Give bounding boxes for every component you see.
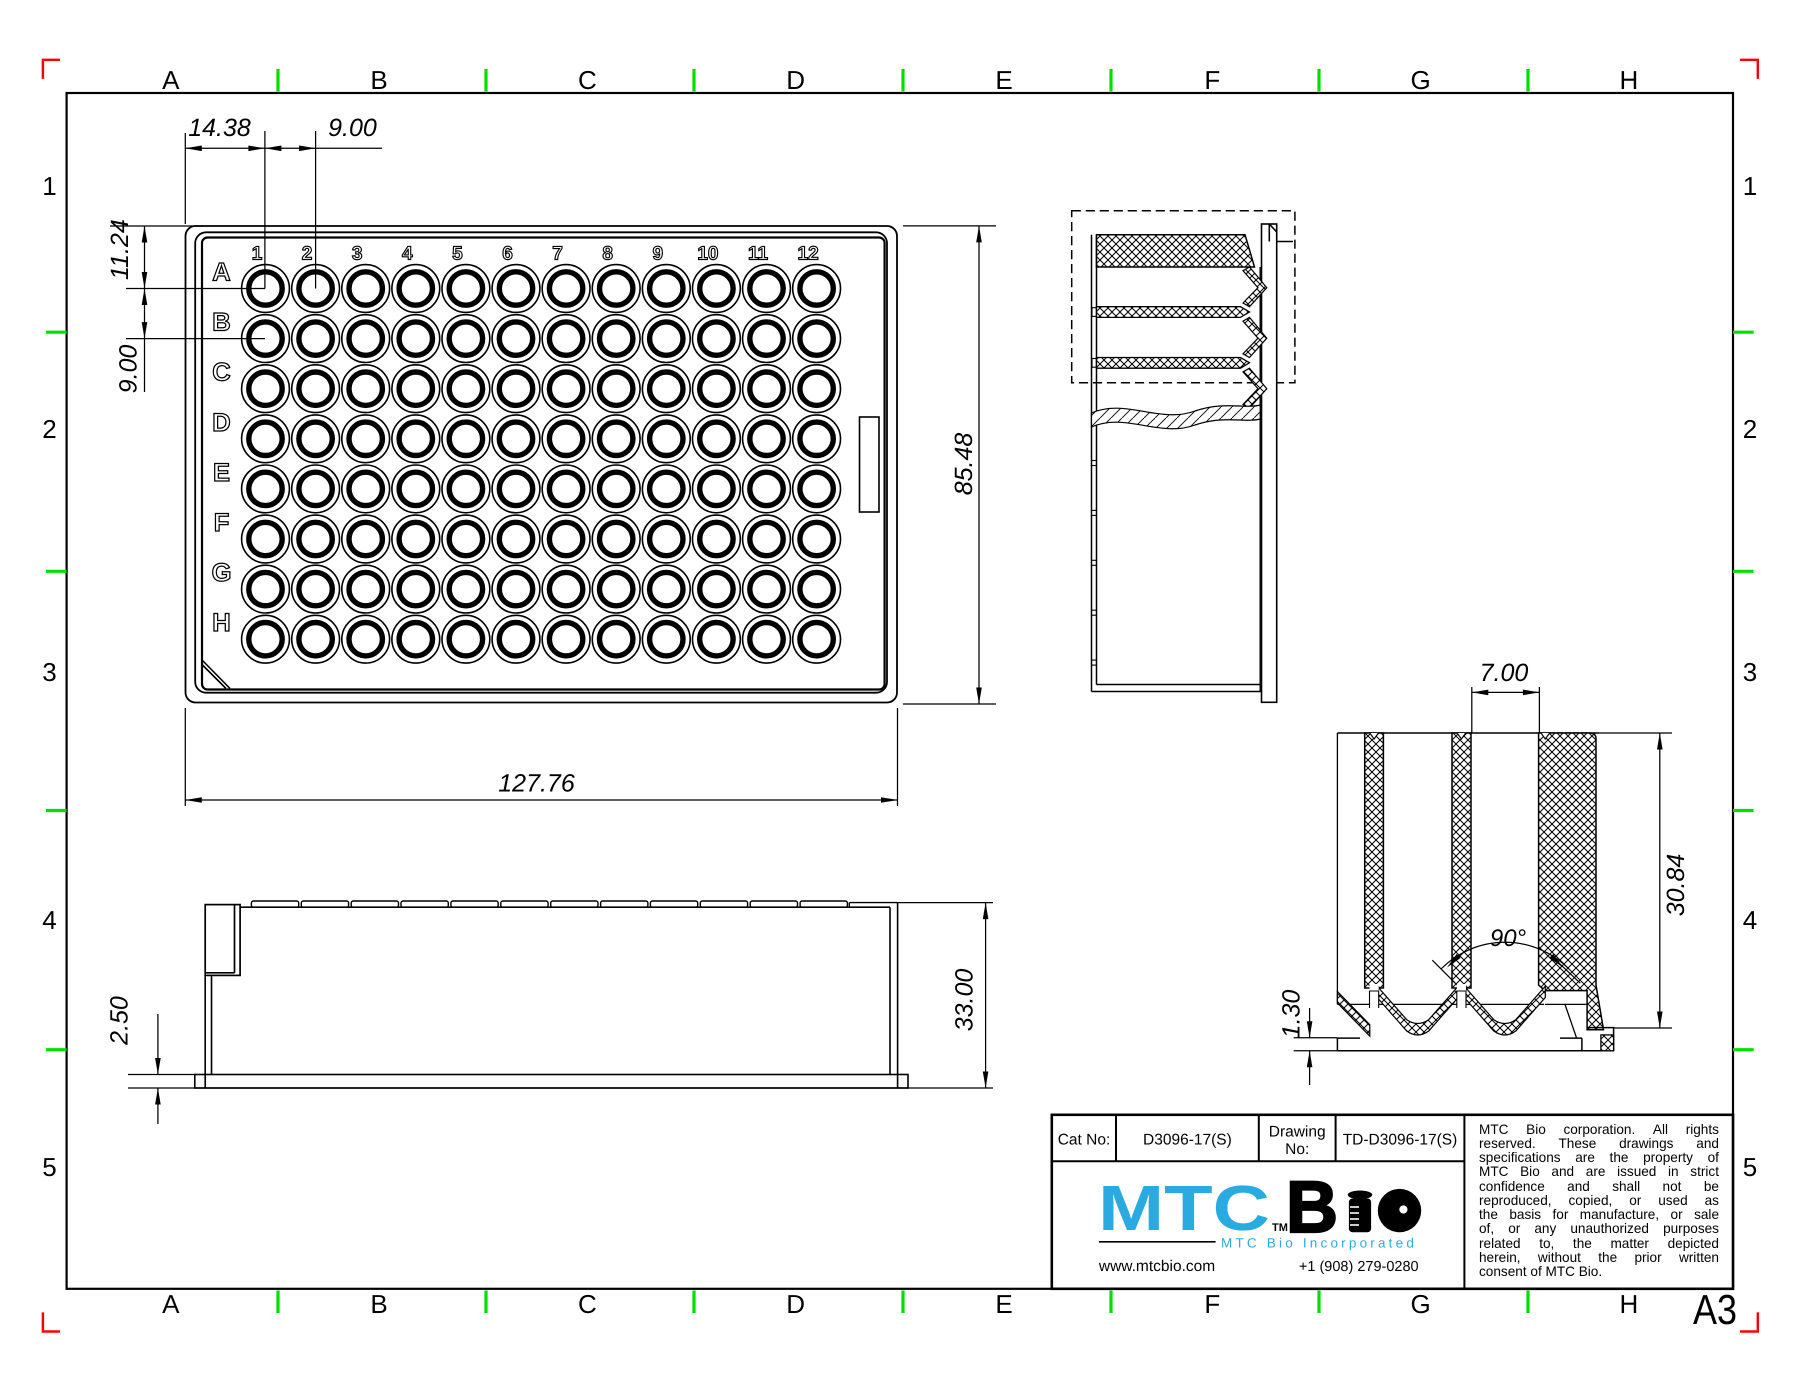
svg-text:D3096-17(S): D3096-17(S) <box>1143 1132 1232 1149</box>
svg-text:3: 3 <box>42 657 56 687</box>
svg-text:10: 10 <box>697 244 718 265</box>
svg-text:D: D <box>786 65 805 95</box>
svg-text:A: A <box>162 1289 180 1319</box>
svg-text:G: G <box>1410 65 1430 95</box>
svg-text:2.50: 2.50 <box>106 996 134 1046</box>
svg-text:D: D <box>786 1289 805 1319</box>
svg-text:A: A <box>162 65 180 95</box>
svg-text:+1 (908) 279-0280: +1 (908) 279-0280 <box>1299 1259 1419 1275</box>
svg-text:14.38: 14.38 <box>188 114 251 142</box>
svg-text:A3: A3 <box>1693 1286 1737 1333</box>
svg-text:TD-D3096-17(S): TD-D3096-17(S) <box>1343 1132 1458 1149</box>
svg-text:2: 2 <box>1743 414 1757 444</box>
svg-text:MTC Bio Incorporated: MTC Bio Incorporated <box>1221 1236 1417 1251</box>
svg-text:D: D <box>212 409 230 437</box>
svg-text:E: E <box>213 459 230 487</box>
svg-text:2: 2 <box>302 244 313 265</box>
svg-text:F: F <box>214 509 230 537</box>
svg-text:33.00: 33.00 <box>951 969 979 1032</box>
svg-text:E: E <box>995 1289 1012 1319</box>
svg-text:9.00: 9.00 <box>115 345 143 394</box>
svg-text:B: B <box>212 309 230 337</box>
svg-text:G: G <box>212 559 232 587</box>
svg-text:7: 7 <box>552 244 563 265</box>
svg-text:H: H <box>1620 65 1639 95</box>
svg-text:85.48: 85.48 <box>950 433 978 496</box>
svg-text:C: C <box>578 65 597 95</box>
svg-text:Cat No:: Cat No: <box>1058 1132 1111 1149</box>
svg-text:6: 6 <box>502 244 513 265</box>
svg-text:H: H <box>1620 1289 1639 1319</box>
svg-text:1: 1 <box>252 244 263 265</box>
svg-text:7.00: 7.00 <box>1480 659 1529 687</box>
svg-text:4: 4 <box>402 244 413 265</box>
svg-text:4: 4 <box>42 905 56 935</box>
svg-text:11: 11 <box>748 244 769 265</box>
svg-text:90°: 90° <box>1490 925 1527 952</box>
svg-text:G: G <box>1410 1289 1430 1319</box>
svg-text:30.84: 30.84 <box>1662 854 1690 917</box>
svg-text:B: B <box>370 1289 387 1319</box>
svg-text:C: C <box>578 1289 597 1319</box>
svg-text:Drawing: Drawing <box>1269 1124 1326 1141</box>
svg-text:5: 5 <box>452 244 463 265</box>
svg-text:3: 3 <box>1743 657 1757 687</box>
svg-text:No:: No: <box>1285 1141 1309 1158</box>
svg-text:5: 5 <box>1743 1152 1757 1182</box>
svg-text:1.30: 1.30 <box>1278 990 1306 1039</box>
svg-text:A: A <box>212 259 230 287</box>
svg-text:5: 5 <box>42 1152 56 1182</box>
svg-text:H: H <box>212 609 230 637</box>
svg-text:11.24: 11.24 <box>106 219 134 280</box>
svg-text:1: 1 <box>42 171 56 201</box>
svg-text:E: E <box>995 65 1012 95</box>
svg-text:2: 2 <box>42 414 56 444</box>
svg-text:MTC: MTC <box>1098 1172 1270 1244</box>
svg-text:F: F <box>1204 65 1220 95</box>
svg-text:F: F <box>1204 1289 1220 1319</box>
svg-text:C: C <box>212 359 230 387</box>
svg-text:B: B <box>370 65 387 95</box>
svg-text:3: 3 <box>352 244 363 265</box>
svg-text:1: 1 <box>1743 171 1757 201</box>
svg-text:9: 9 <box>653 244 664 265</box>
svg-text:127.76: 127.76 <box>498 770 575 798</box>
svg-text:www.mtcbio.com: www.mtcbio.com <box>1098 1258 1215 1275</box>
svg-text:9.00: 9.00 <box>328 114 377 142</box>
svg-text:12: 12 <box>798 244 819 265</box>
svg-text:8: 8 <box>602 244 613 265</box>
svg-text:4: 4 <box>1743 905 1757 935</box>
